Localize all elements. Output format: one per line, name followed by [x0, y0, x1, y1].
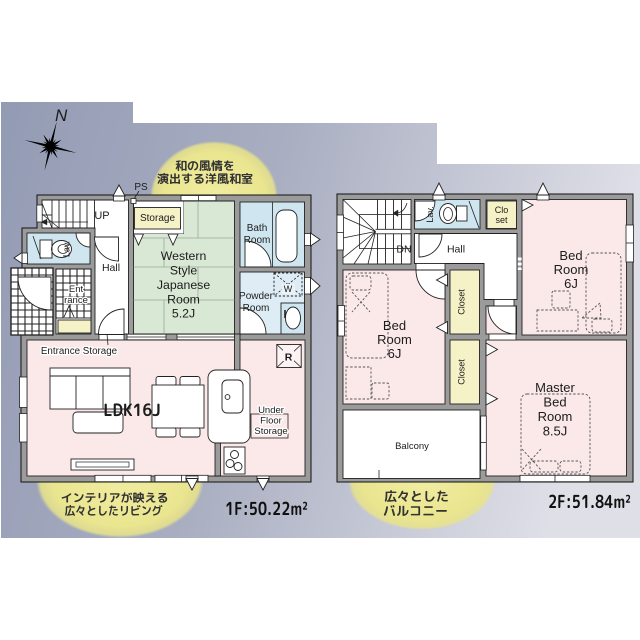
svg-text:Powder: Powder: [239, 291, 274, 302]
svg-text:8.5J: 8.5J: [543, 424, 568, 439]
svg-text:Under: Under: [258, 405, 284, 416]
svg-text:Japanese: Japanese: [157, 278, 210, 292]
svg-text:Room: Room: [243, 303, 270, 314]
svg-text:6J: 6J: [388, 346, 402, 361]
svg-text:Bed: Bed: [543, 395, 566, 410]
svg-text:DN: DN: [396, 244, 411, 256]
svg-text:Clo: Clo: [495, 205, 509, 215]
svg-text:Balcony: Balcony: [395, 441, 429, 452]
svg-text:set: set: [495, 215, 508, 225]
svg-text:Master: Master: [535, 380, 575, 395]
svg-text:Hall: Hall: [447, 244, 465, 256]
svg-text:R: R: [285, 352, 293, 364]
svg-text:UP: UP: [94, 210, 109, 222]
svg-text:Hall: Hall: [102, 262, 120, 274]
svg-text:Style: Style: [170, 264, 197, 278]
svg-text:Entrance Storage: Entrance Storage: [41, 346, 118, 357]
svg-text:N: N: [55, 106, 68, 125]
svg-text:Floor: Floor: [260, 416, 282, 427]
svg-text:Room: Room: [554, 262, 589, 277]
svg-text:5.2J: 5.2J: [172, 307, 195, 321]
svg-text:Bed: Bed: [383, 318, 406, 333]
svg-text:Room: Room: [377, 332, 412, 347]
svg-text:W: W: [284, 284, 293, 294]
svg-text:PS: PS: [134, 182, 148, 193]
svg-text:Bath: Bath: [247, 223, 268, 234]
svg-text:rance: rance: [64, 295, 88, 306]
svg-text:Room: Room: [244, 235, 271, 246]
svg-text:Room: Room: [167, 293, 200, 307]
svg-text:Lav.: Lav.: [62, 241, 72, 257]
svg-text:Storage: Storage: [254, 426, 287, 437]
svg-text:Ent: Ent: [69, 284, 84, 295]
svg-text:Closet: Closet: [457, 359, 467, 385]
svg-text:6J: 6J: [564, 276, 578, 291]
svg-text:Western: Western: [161, 249, 207, 263]
svg-text:Bed: Bed: [559, 248, 582, 263]
svg-text:Storage: Storage: [140, 213, 175, 224]
svg-text:Lav.: Lav.: [425, 206, 435, 222]
svg-text:Room: Room: [538, 409, 573, 424]
svg-text:Closet: Closet: [457, 289, 467, 315]
